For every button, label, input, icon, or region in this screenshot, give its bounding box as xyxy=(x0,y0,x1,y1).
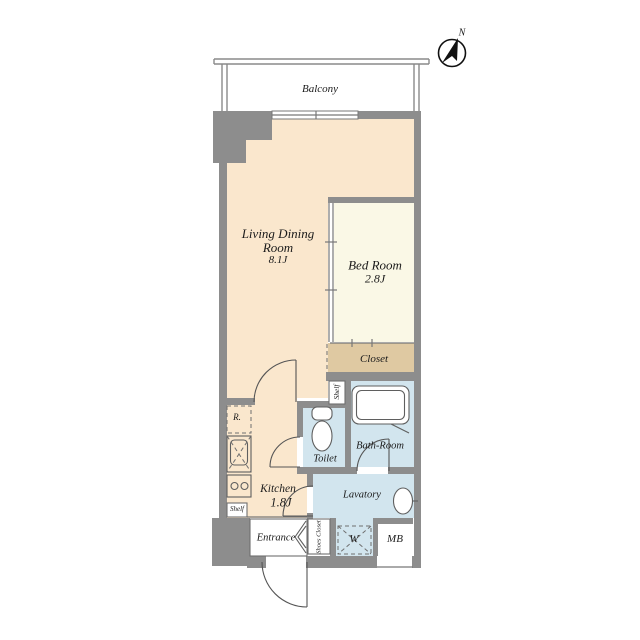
living-room-name-line1: Living Dining xyxy=(242,227,315,241)
compass-north-label: N xyxy=(459,29,466,40)
refrigerator-label: R. xyxy=(233,413,241,423)
toilet-label: Toilet xyxy=(313,453,337,464)
entrance-door xyxy=(262,562,307,607)
bed-room-label: Bed Room 2.8J xyxy=(348,259,402,286)
balcony-label: Balcony xyxy=(302,84,338,96)
living-room-area: 8.1J xyxy=(242,255,315,267)
closet-label: Closet xyxy=(360,354,388,366)
washing-machine-label: W xyxy=(349,534,358,546)
bath-room-label: Bath-Room xyxy=(356,440,404,451)
living-room-name-line2: Room xyxy=(242,241,315,255)
meter-box-label: MB xyxy=(387,534,403,546)
toilet-fixture xyxy=(312,407,332,451)
bed-room-area: 2.8J xyxy=(348,273,402,286)
north-compass xyxy=(439,38,466,67)
bath-shelf-label: Shelf xyxy=(333,385,341,400)
balcony-window xyxy=(272,111,358,119)
floor-plan: Balcony N Living Dining Room 8.1J Bed Ro… xyxy=(0,0,640,640)
bed-room-name: Bed Room xyxy=(348,259,402,273)
kitchen-label: Kitchen xyxy=(260,483,296,495)
entrance-label: Entrance xyxy=(257,532,296,543)
lavatory-label: Lavatory xyxy=(343,489,381,500)
living-dining-room-label: Living Dining Room 8.1J xyxy=(242,227,315,267)
kitchen-area-label: 1.8J xyxy=(270,496,291,510)
shoes-closet-label: Shoes Closet xyxy=(315,520,322,553)
kitchen-shelf-label: Shelf xyxy=(230,506,244,514)
